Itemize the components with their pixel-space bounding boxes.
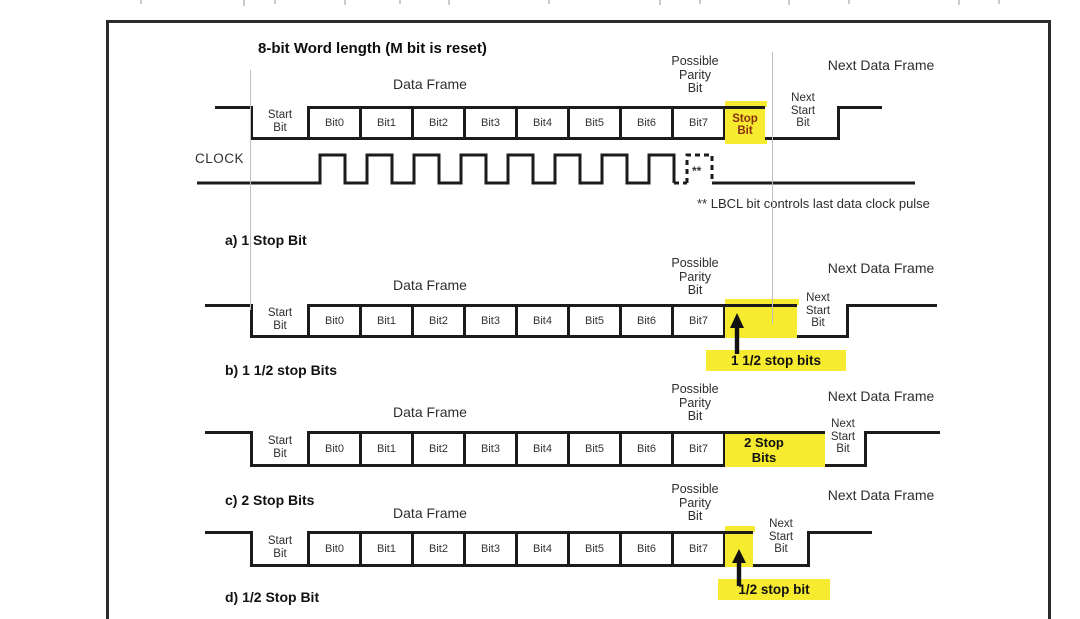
start-bit-label: StartBit: [268, 535, 292, 560]
up-arrow-icon: [729, 548, 749, 586]
up-arrow-icon: [727, 312, 747, 354]
vertical-guide-line: [772, 52, 773, 324]
bit-cell-bit2: Bit2: [411, 531, 466, 567]
next-frame-high-line: [810, 531, 872, 534]
bit-cell-bit6: Bit6: [619, 531, 674, 567]
bit-cell-bit5: Bit5: [567, 531, 622, 567]
bit-cell-bit3: Bit3: [463, 531, 518, 567]
bit-cell-bit4: Bit4: [515, 531, 570, 567]
possible-parity-label: PossibleParityBit: [655, 483, 735, 524]
bit-cell-bit7: Bit7: [671, 531, 726, 567]
data-frame-label: Data Frame: [350, 505, 510, 521]
idle-high-line: [205, 531, 253, 534]
bit-cells: Bit0Bit1Bit2Bit3Bit4Bit5Bit6Bit7: [307, 531, 726, 567]
bit-cell-bit1: Bit1: [359, 531, 414, 567]
waveform-d: PossibleParityBit Next Data Frame Data F…: [0, 0, 1080, 619]
next-data-frame-label: Next Data Frame: [801, 487, 961, 503]
section-label-d: d) 1/2 Stop Bit: [225, 589, 319, 605]
next-start-bit-label: NextStartBit: [755, 518, 807, 556]
start-bit-cell: StartBit: [250, 531, 307, 567]
vertical-guide-line: [250, 70, 251, 310]
bit-cell-bit0: Bit0: [307, 531, 362, 567]
figure-canvas: 8-bit Word length (M bit is reset) Data …: [0, 0, 1080, 619]
